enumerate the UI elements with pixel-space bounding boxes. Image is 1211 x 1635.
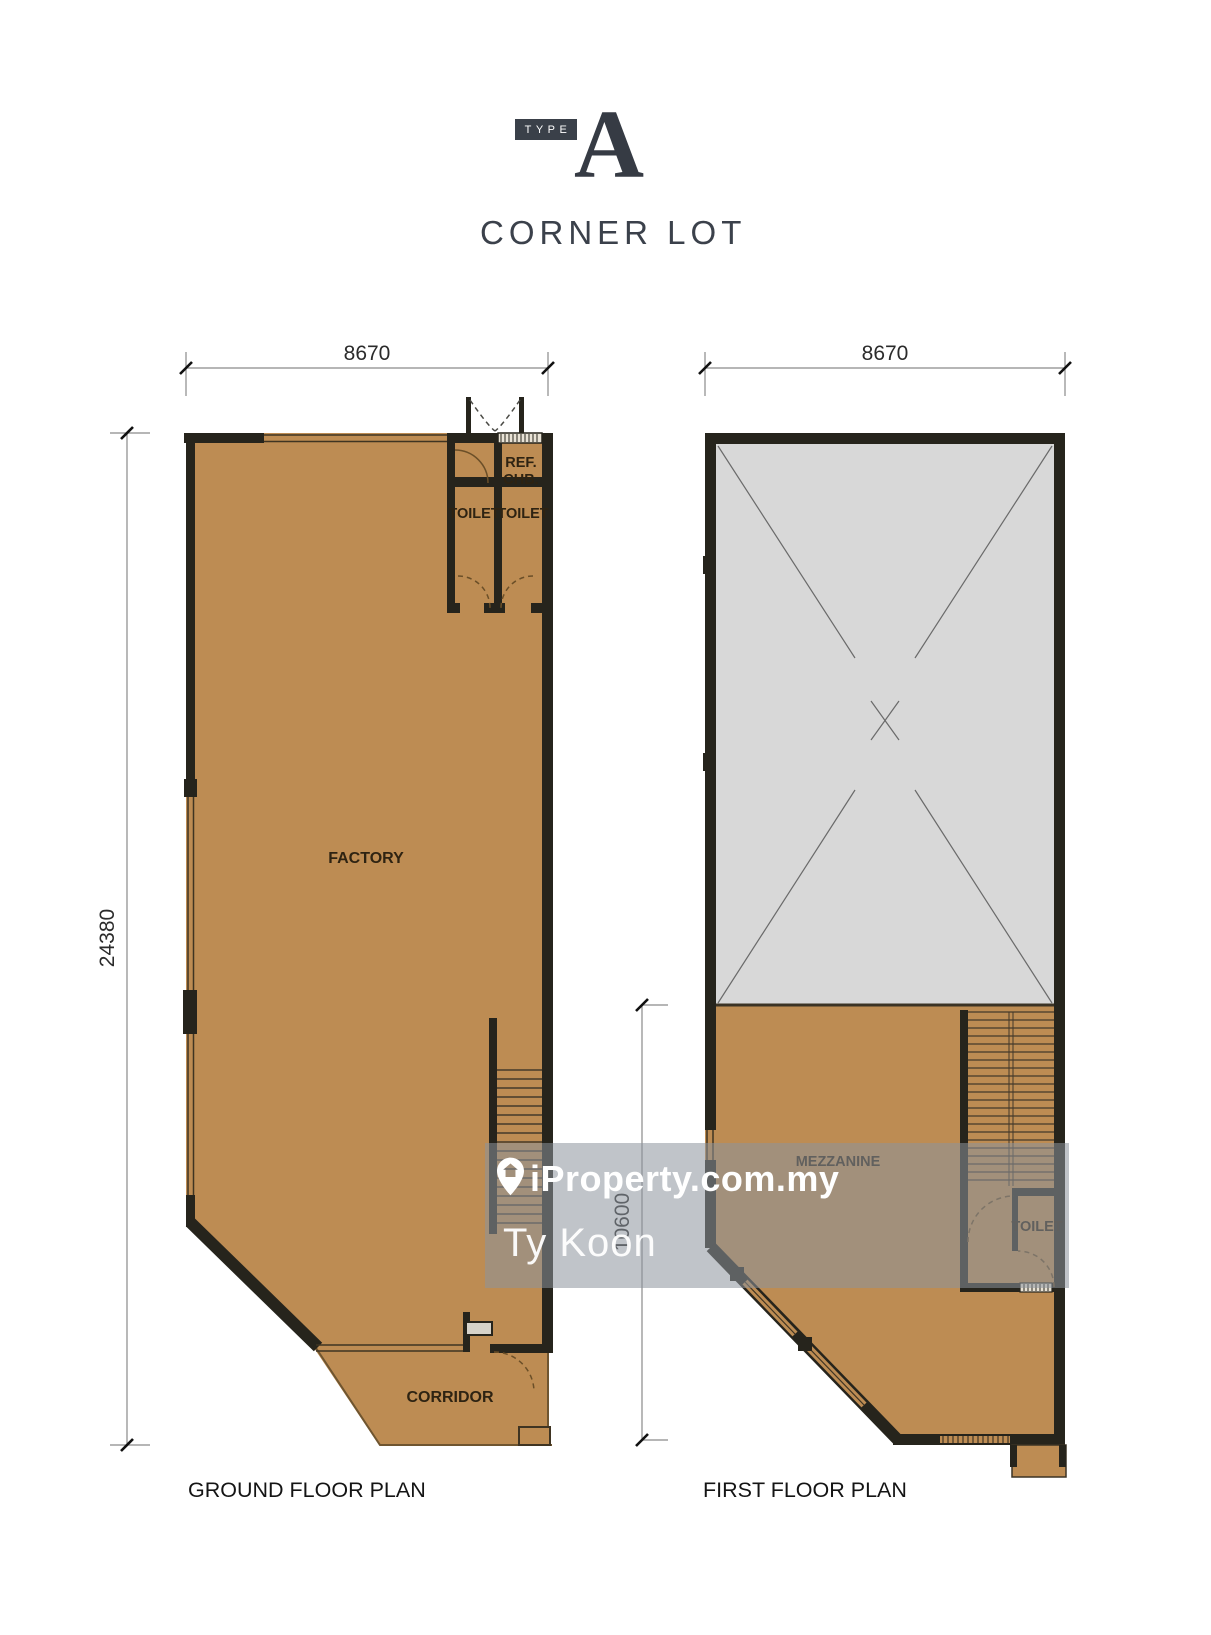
ff-void-pillar-1 — [703, 556, 715, 574]
ff-plan-title: FIRST FLOOR PLAN — [703, 1478, 907, 1502]
gf-rear-door-leaf — [466, 1322, 492, 1335]
gf-left-window-1 — [186, 795, 195, 990]
ff-right-wall — [1054, 433, 1065, 1445]
gf-width-dimension: 8670 — [180, 342, 554, 396]
ff-width-dimension: 8670 — [699, 342, 1071, 396]
gf-toilet-block-left-wall — [447, 443, 455, 613]
watermark-brand-text: iProperty.com.my — [530, 1158, 839, 1200]
gf-left-pillar-2 — [183, 990, 197, 1034]
gf-toilet-bottom-wall-a — [447, 603, 460, 613]
gf-top-wall — [184, 433, 264, 443]
floor-plan-sheet: TYPE A CORNER LOT — [0, 0, 1211, 1635]
svg-text:24380: 24380 — [96, 909, 119, 967]
gf-toilet-left-label: TOILET — [448, 506, 499, 522]
plans-drawing: FACTORY REF. CHB. TOILET TOILET CORRIDOR… — [0, 0, 1211, 1635]
first-floor-plan: MEZZANINE TOILET 8670 10600 FIRST FLOOR … — [611, 342, 1071, 1502]
gf-top-window — [264, 433, 447, 443]
gf-plan-title: GROUND FLOOR PLAN — [188, 1478, 426, 1502]
ff-left-wall-upper — [705, 433, 716, 1130]
gf-corridor-label: CORRIDOR — [406, 1389, 494, 1406]
map-pin-house-icon — [497, 1157, 524, 1201]
gf-left-wall-upper — [186, 433, 195, 795]
ff-void-pillar-2 — [703, 753, 715, 771]
svg-text:8670: 8670 — [862, 342, 909, 365]
svg-text:8670: 8670 — [344, 342, 391, 365]
gf-toilet-right-label: TOILET — [497, 506, 548, 522]
watermark-brand-row: iProperty.com.my — [497, 1157, 839, 1201]
gf-refchb-grille — [498, 433, 542, 443]
ff-rear-ledge — [1010, 1445, 1066, 1477]
watermark-band: iProperty.com.my Ty Koon — [485, 1143, 1069, 1288]
gf-factory-label: FACTORY — [328, 850, 404, 867]
ff-bottom-wall — [893, 1434, 1065, 1445]
ground-floor-plan: FACTORY REF. CHB. TOILET TOILET CORRIDOR… — [96, 342, 554, 1502]
gf-left-window-2 — [186, 1034, 195, 1195]
ff-top-wall — [705, 433, 1065, 444]
gf-refchb-label-1: REF. — [505, 455, 536, 471]
ff-void-area — [716, 444, 1054, 1005]
gf-double-door — [466, 397, 524, 433]
gf-refchb-label-2: CHB. — [503, 472, 538, 488]
watermark-agent-text: Ty Koon — [503, 1221, 657, 1266]
gf-height-dimension: 24380 — [96, 427, 150, 1451]
gf-left-pillar-1 — [184, 779, 197, 797]
gf-corridor-step — [519, 1427, 550, 1445]
gf-toilet-bottom-wall-c — [531, 603, 553, 613]
